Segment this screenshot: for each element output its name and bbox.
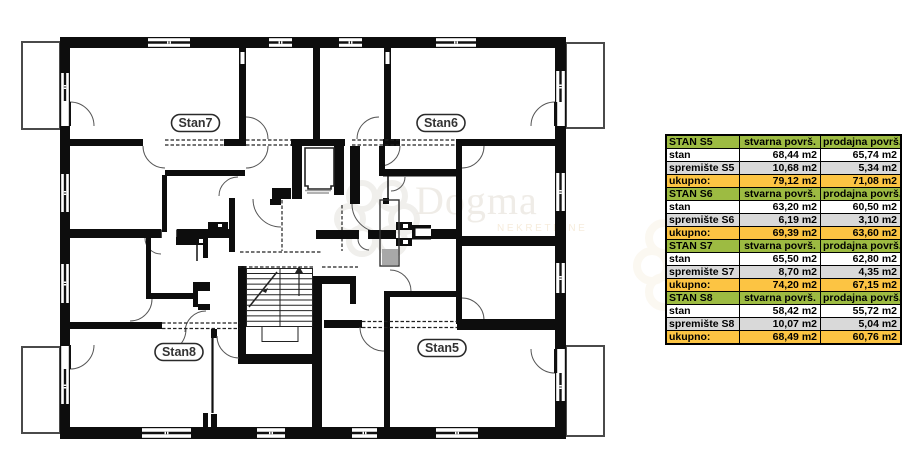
svg-text:Stan8: Stan8 (162, 345, 196, 359)
svg-text:Stan5: Stan5 (425, 341, 459, 355)
svg-text:Stan6: Stan6 (424, 116, 458, 130)
svg-text:NEKRETNINE: NEKRETNINE (497, 223, 587, 234)
svg-text:Dogma: Dogma (415, 178, 538, 223)
svg-text:Stan7: Stan7 (178, 116, 212, 130)
